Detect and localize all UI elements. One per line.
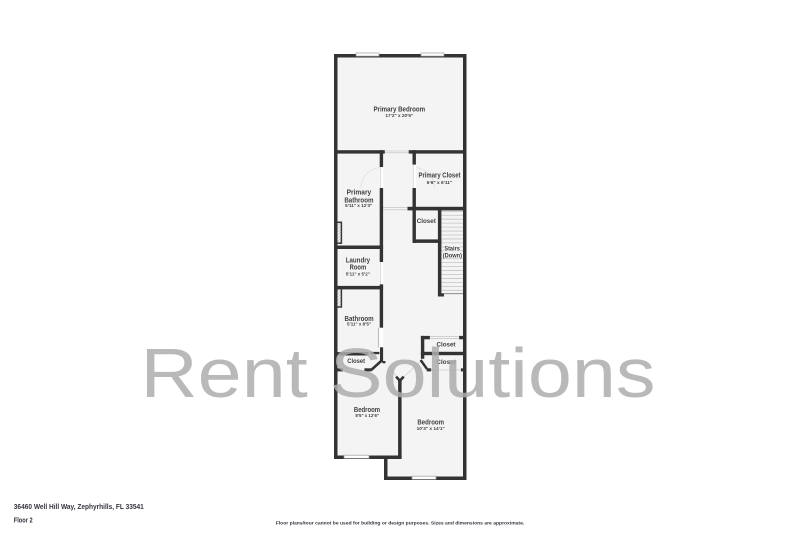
svg-text:Primary Closet: Primary Closet bbox=[419, 172, 462, 179]
svg-text:5’11" x 5’2": 5’11" x 5’2" bbox=[346, 271, 370, 276]
svg-text:10’3" x 14’1": 10’3" x 14’1" bbox=[417, 426, 445, 431]
svg-text:Floor plans/tour cannot be use: Floor plans/tour cannot be used for buil… bbox=[276, 521, 525, 526]
svg-text:8’5" x 12’6": 8’5" x 12’6" bbox=[355, 413, 379, 418]
svg-text:Primary: Primary bbox=[347, 190, 372, 197]
svg-text:6’6" x 6’11": 6’6" x 6’11" bbox=[427, 180, 452, 185]
svg-text:Rent Solutions: Rent Solutions bbox=[141, 334, 656, 412]
svg-text:36460 Well Hill Way, Zephyrhil: 36460 Well Hill Way, Zephyrhills, FL 335… bbox=[14, 504, 144, 511]
svg-text:Floor 2: Floor 2 bbox=[14, 517, 33, 524]
svg-text:5’11" x 8’5": 5’11" x 8’5" bbox=[347, 322, 371, 327]
svg-text:(Down): (Down) bbox=[443, 253, 462, 260]
svg-text:Closet: Closet bbox=[417, 218, 437, 225]
svg-text:17’2" x 20’5": 17’2" x 20’5" bbox=[385, 113, 413, 118]
svg-text:Stairs: Stairs bbox=[444, 245, 460, 252]
svg-text:5’11" x 12’3": 5’11" x 12’3" bbox=[345, 203, 372, 208]
